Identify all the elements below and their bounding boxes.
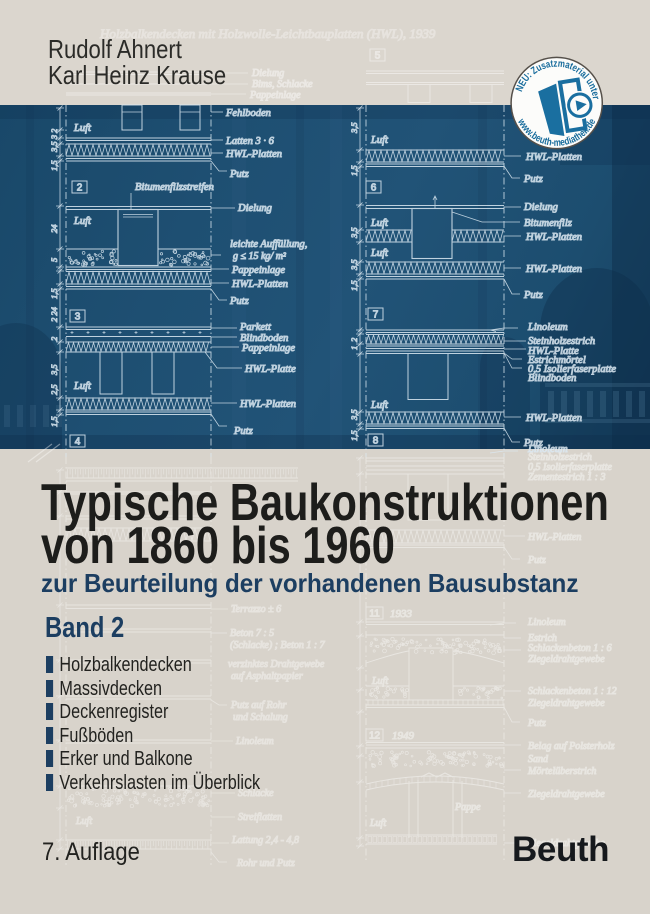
svg-text:g ≤ 15 kg/ m²: g ≤ 15 kg/ m² [233, 251, 287, 262]
svg-text:6: 6 [371, 183, 377, 194]
svg-text:Schlackenbeton 1 : 12: Schlackenbeton 1 : 12 [528, 686, 617, 697]
svg-text:Luft: Luft [73, 381, 92, 392]
svg-text:2: 2 [77, 183, 83, 194]
svg-text:4: 4 [75, 437, 81, 448]
svg-text:1: 1 [349, 346, 359, 350]
svg-text:HWL-Platte: HWL-Platte [244, 364, 296, 375]
svg-text:1,5: 1,5 [49, 288, 59, 299]
svg-text:Latten 3 · 6: Latten 3 · 6 [225, 136, 275, 147]
svg-text:3: 3 [75, 312, 81, 323]
svg-text:1,5: 1,5 [349, 165, 359, 176]
svg-text:Sand: Sand [528, 754, 549, 765]
svg-text:HWL-Platten: HWL-Platten [231, 279, 288, 290]
svg-text:1,5: 1,5 [49, 416, 59, 427]
svg-text:Putz: Putz [523, 174, 543, 185]
svg-text:Putz: Putz [229, 296, 249, 307]
svg-text:leichte Auffüllung,: leichte Auffüllung, [230, 239, 307, 250]
svg-text:3,5: 3,5 [349, 409, 359, 421]
svg-text:(Schlacke) ; Beton 1 : 7: (Schlacke) ; Beton 1 : 7 [230, 640, 326, 651]
svg-text:Parkett: Parkett [239, 322, 272, 333]
svg-text:Luft: Luft [73, 216, 92, 227]
svg-text:Pappeinlage: Pappeinlage [249, 90, 301, 101]
svg-text:2 24: 2 24 [49, 306, 59, 322]
svg-text:Luft: Luft [370, 400, 389, 411]
svg-text:1,5: 1,5 [349, 430, 359, 441]
svg-text:HWL-Platten: HWL-Platten [525, 413, 582, 424]
svg-text:Luft: Luft [371, 676, 388, 687]
svg-text:Bitumenfilz: Bitumenfilz [524, 218, 572, 229]
svg-text:Putz: Putz [527, 718, 546, 729]
svg-text:2: 2 [49, 128, 59, 133]
svg-text:Pappeinlage: Pappeinlage [241, 343, 295, 354]
svg-text:24: 24 [49, 224, 59, 233]
svg-text:5: 5 [375, 51, 381, 62]
svg-text:1,5: 1,5 [49, 160, 59, 171]
svg-text:Pappeinlage: Pappeinlage [231, 265, 285, 276]
svg-text:Linoleum: Linoleum [527, 322, 568, 333]
svg-text:Streiflatten: Streiflatten [238, 812, 282, 823]
svg-text:Bitumenfilzstreifen: Bitumenfilzstreifen [135, 182, 214, 193]
svg-text:3,5: 3,5 [349, 259, 359, 271]
svg-text:2,5: 2,5 [49, 384, 59, 395]
svg-text:Luft: Luft [370, 248, 389, 259]
svg-text:Dielung: Dielung [251, 68, 284, 79]
svg-text:Schlackenbeton 1 : 6: Schlackenbeton 1 : 6 [528, 643, 612, 654]
svg-text:Luft: Luft [73, 123, 92, 134]
svg-text:Beton 7 : 5: Beton 7 : 5 [230, 628, 274, 639]
svg-text:Putz: Putz [523, 290, 543, 301]
svg-text:Lattung 2,4 - 4,8: Lattung 2,4 - 4,8 [231, 835, 299, 846]
svg-text:Bims, Schlacke: Bims, Schlacke [252, 79, 313, 90]
svg-text:HWL-Platten: HWL-Platten [525, 264, 582, 275]
svg-text:Linoleum: Linoleum [527, 617, 566, 628]
svg-text:Ziegeldrahtgewebe: Ziegeldrahtgewebe [528, 698, 605, 709]
svg-text:Mörtelüberstrich: Mörtelüberstrich [527, 766, 596, 777]
svg-text:Luft: Luft [370, 135, 389, 146]
svg-text:11: 11 [369, 609, 380, 620]
svg-text:Dielung: Dielung [237, 203, 272, 214]
svg-text:Fehlboden: Fehlboden [225, 108, 271, 119]
svg-text:3,5: 3,5 [349, 227, 359, 239]
svg-text:Dielung: Dielung [523, 202, 558, 213]
svg-text:Putz: Putz [229, 169, 249, 180]
svg-text:Ziegeldrahtgewebe: Ziegeldrahtgewebe [528, 654, 605, 665]
svg-text:Rohr und Putz: Rohr und Putz [236, 858, 295, 869]
svg-text:7: 7 [373, 310, 379, 321]
svg-text:Pappe: Pappe [454, 802, 481, 813]
svg-text:Terrazzo ± 6: Terrazzo ± 6 [231, 604, 281, 615]
svg-text:Luft: Luft [75, 816, 92, 827]
svg-text:3,5: 3,5 [349, 122, 359, 134]
svg-text:8: 8 [373, 436, 379, 447]
svg-text:Luft: Luft [369, 818, 386, 829]
svg-text:1949: 1949 [392, 730, 415, 742]
svg-text:Luft: Luft [370, 218, 389, 229]
svg-text:2: 2 [49, 336, 59, 341]
svg-text:HWL-Platten: HWL-Platten [525, 232, 582, 243]
svg-text:3,5 3: 3,5 3 [49, 135, 59, 153]
svg-text:Ziegeldrahtgewebe: Ziegeldrahtgewebe [528, 789, 605, 800]
svg-text:5: 5 [49, 258, 59, 262]
svg-text:12: 12 [369, 731, 381, 742]
svg-text:Belag auf Polsterholz: Belag auf Polsterholz [528, 741, 615, 752]
svg-text:HWL-Platten: HWL-Platten [225, 149, 282, 160]
svg-text:HWL-Platten: HWL-Platten [525, 152, 582, 163]
svg-text:Blindboden: Blindboden [528, 373, 576, 384]
svg-text:HWL-Platten: HWL-Platten [239, 399, 296, 410]
svg-text:Putz: Putz [233, 426, 253, 437]
svg-text:3,5: 3,5 [49, 364, 59, 376]
svg-text:2: 2 [349, 337, 359, 342]
svg-text:1,5: 1,5 [349, 280, 359, 291]
svg-text:1933: 1933 [390, 608, 413, 620]
